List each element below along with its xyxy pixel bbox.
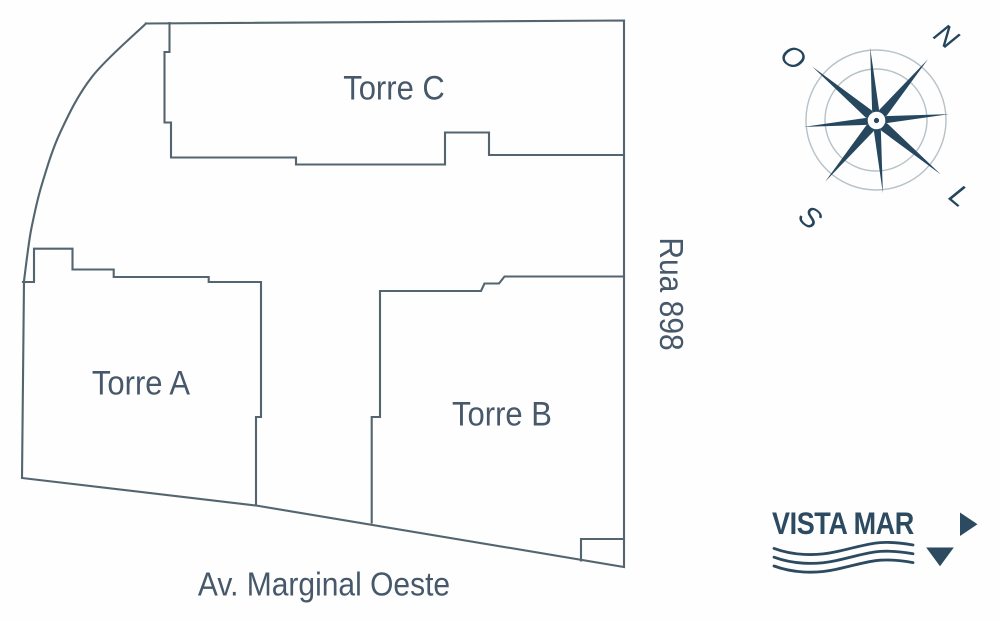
svg-text:Torre C: Torre C [343, 69, 445, 107]
svg-text:Torre B: Torre B [452, 395, 552, 433]
svg-text:Av. Marginal Oeste: Av. Marginal Oeste [198, 565, 450, 603]
svg-text:Rua 898: Rua 898 [653, 237, 691, 350]
svg-text:Torre A: Torre A [92, 364, 190, 402]
svg-text:VISTA MAR: VISTA MAR [772, 506, 914, 542]
